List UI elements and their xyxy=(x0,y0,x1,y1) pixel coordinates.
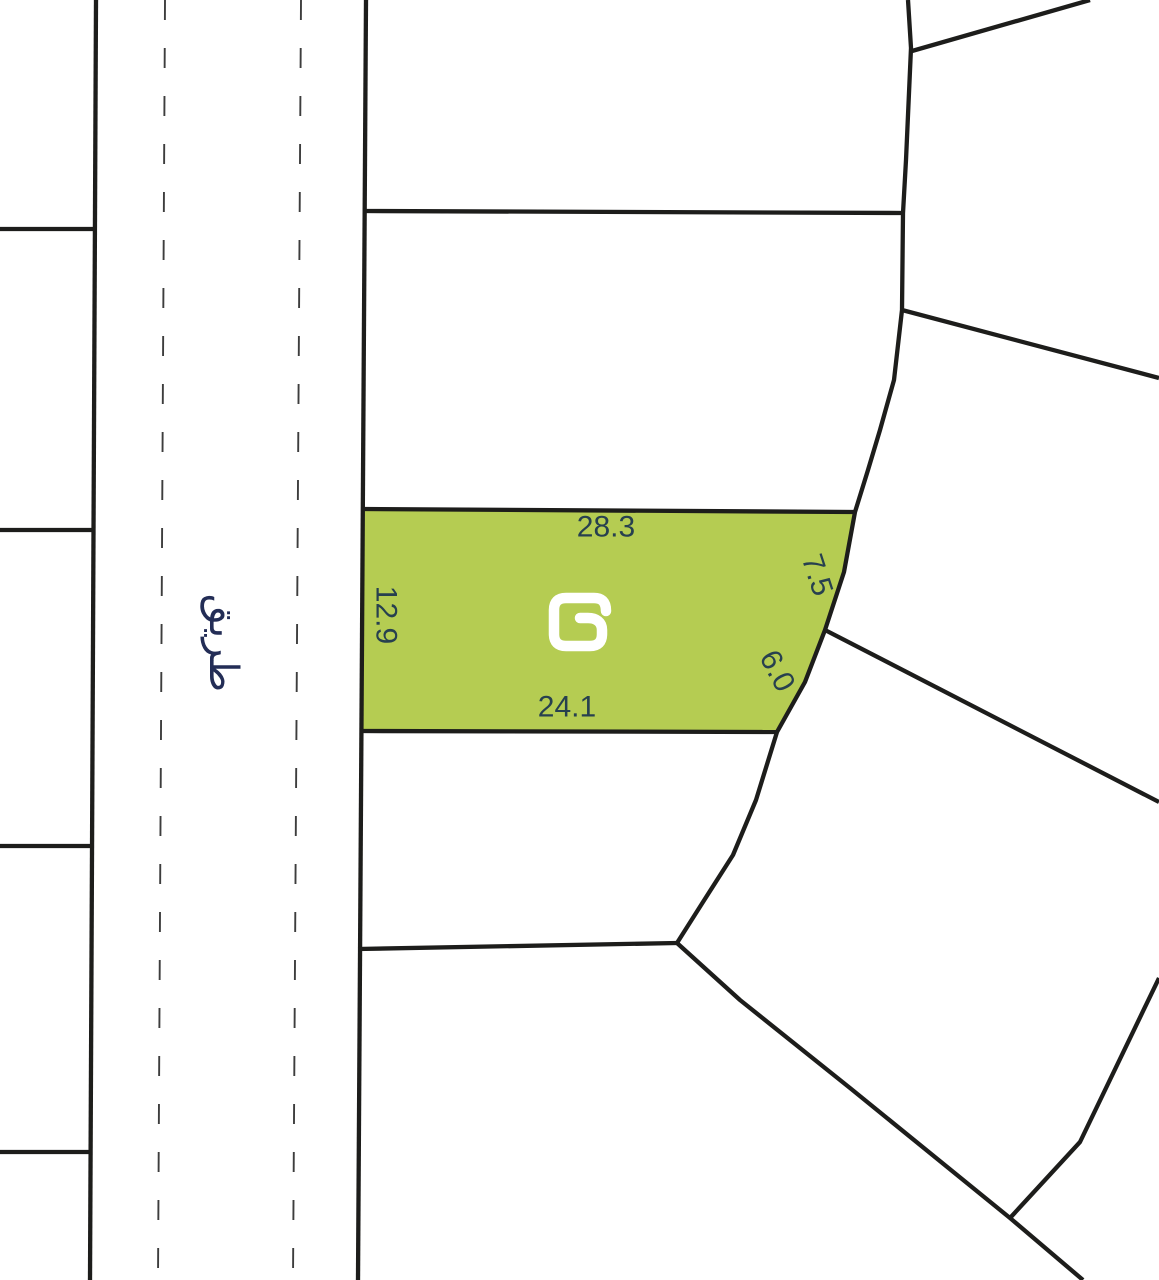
middle-block-divider-north xyxy=(364,211,903,213)
dimension-label-4: 12.9 xyxy=(370,586,403,644)
parcel-map-svg: 28.37.56.024.112.9طريق xyxy=(0,0,1159,1280)
road-name-label: طريق xyxy=(200,594,246,692)
cadastral-map: 28.37.56.024.112.9طريق xyxy=(0,0,1159,1280)
dimension-label-3: 24.1 xyxy=(538,691,596,724)
highlight-south-edge xyxy=(362,731,777,732)
dimension-label-0: 28.3 xyxy=(577,511,635,544)
